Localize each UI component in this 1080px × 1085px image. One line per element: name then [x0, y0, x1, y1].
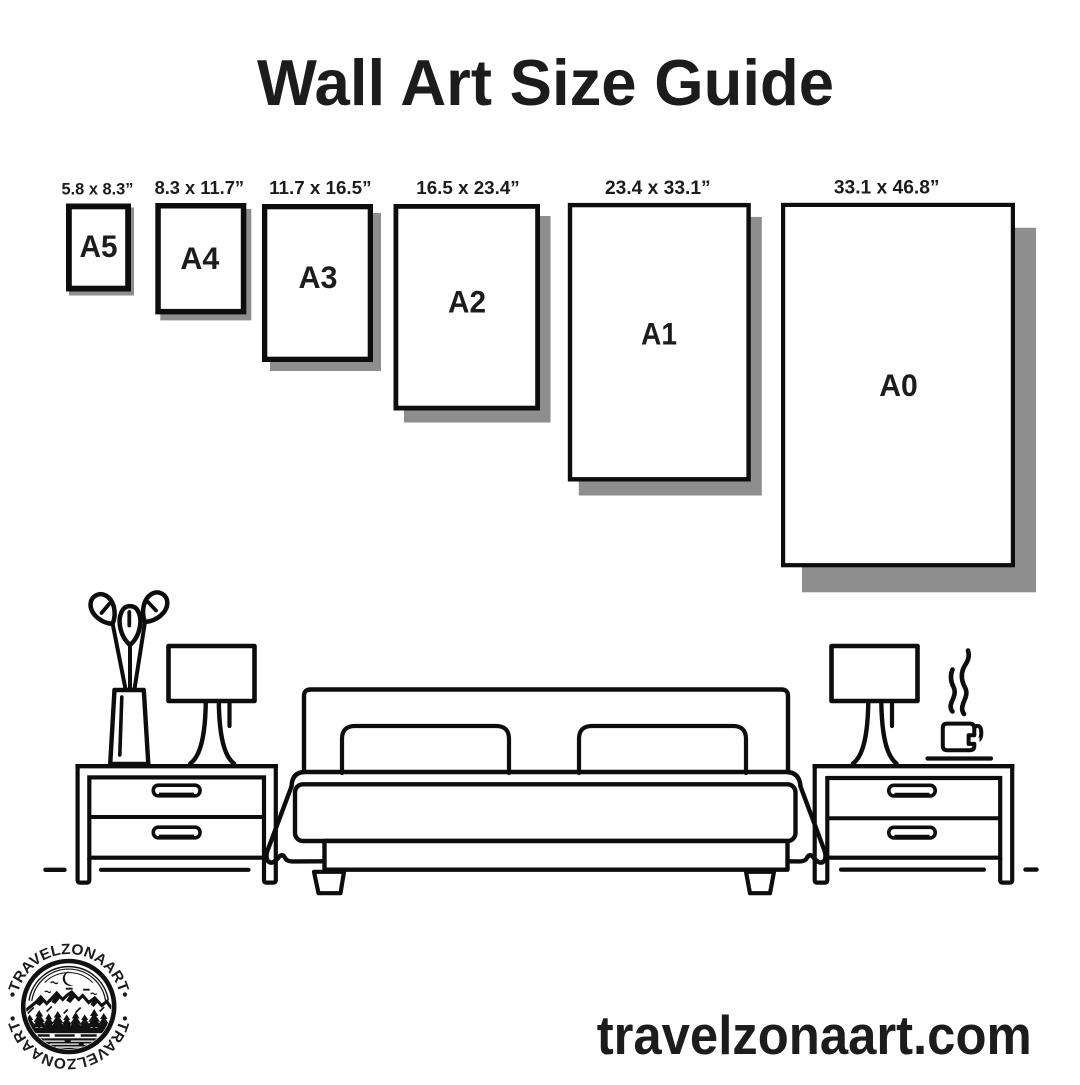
svg-text:5.8 x 8.3”: 5.8 x 8.3”: [62, 181, 134, 199]
svg-text:8.3 x 11.7”: 8.3 x 11.7”: [155, 177, 244, 198]
svg-text:16.5 x 23.4”: 16.5 x 23.4”: [416, 177, 519, 198]
svg-text:A2: A2: [448, 285, 486, 320]
svg-text:A4: A4: [180, 241, 220, 276]
svg-text:33.1 x 46.8”: 33.1 x 46.8”: [834, 177, 940, 198]
svg-text:A3: A3: [299, 260, 338, 295]
svg-text:travelzonaart.com: travelzonaart.com: [597, 1004, 1032, 1066]
svg-text:A5: A5: [80, 229, 118, 264]
svg-text:A1: A1: [641, 316, 677, 351]
svg-text:23.4 x 33.1”: 23.4 x 33.1”: [605, 178, 711, 199]
svg-text:A0: A0: [879, 368, 918, 403]
svg-text:Wall Art Size Guide: Wall Art Size Guide: [257, 46, 834, 119]
svg-text:11.7 x 16.5”: 11.7 x 16.5”: [269, 177, 371, 198]
